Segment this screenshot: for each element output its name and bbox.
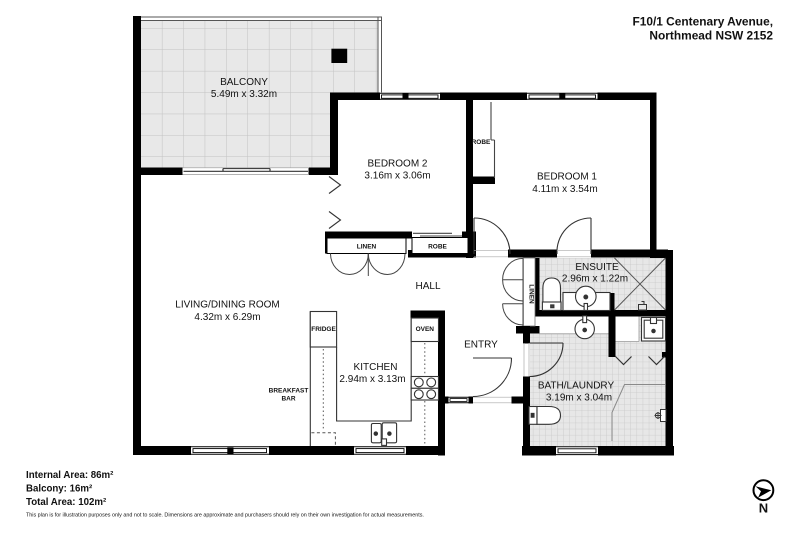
svg-text:BALCONY: BALCONY [220, 77, 268, 88]
svg-text:Internal Area: 86m²: Internal Area: 86m² [26, 470, 114, 481]
svg-text:Balcony: 16m²: Balcony: 16m² [26, 484, 93, 495]
svg-text:LIVING/DINING ROOM: LIVING/DINING ROOM [175, 300, 279, 311]
svg-text:BAR: BAR [281, 396, 295, 403]
svg-text:ROBE: ROBE [428, 244, 447, 251]
svg-text:This plan is for illustration: This plan is for illustration purposes o… [26, 513, 424, 519]
svg-text:FRIDGE: FRIDGE [311, 326, 336, 333]
svg-text:LINEN: LINEN [528, 284, 535, 304]
svg-text:Northmead NSW 2152: Northmead NSW 2152 [649, 29, 773, 43]
svg-text:3.19m x 3.04m: 3.19m x 3.04m [546, 393, 612, 404]
svg-text:N: N [759, 501, 768, 516]
svg-text:3.16m x 3.06m: 3.16m x 3.06m [364, 171, 430, 182]
svg-text:Total Area: 102m²: Total Area: 102m² [26, 497, 107, 508]
svg-text:2.94m x 3.13m: 2.94m x 3.13m [339, 374, 405, 385]
svg-text:LINEN: LINEN [357, 244, 377, 251]
svg-text:BATH/LAUNDRY: BATH/LAUNDRY [538, 381, 615, 392]
svg-text:ENTRY: ENTRY [464, 340, 498, 351]
svg-text:ENSUITE: ENSUITE [575, 262, 619, 273]
svg-text:HALL: HALL [415, 281, 440, 292]
svg-text:2.96m x 1.22m: 2.96m x 1.22m [562, 274, 628, 285]
svg-text:4.11m x 3.54m: 4.11m x 3.54m [532, 184, 597, 195]
svg-text:KITCHEN: KITCHEN [354, 362, 398, 373]
svg-text:5.49m x 3.32m: 5.49m x 3.32m [211, 89, 277, 100]
svg-text:BEDROOM 1: BEDROOM 1 [537, 172, 597, 183]
svg-text:BREAKFAST: BREAKFAST [269, 388, 309, 395]
svg-text:F10/1 Centenary Avenue,: F10/1 Centenary Avenue, [632, 15, 773, 29]
svg-text:OVEN: OVEN [416, 326, 435, 333]
svg-text:ROBE: ROBE [472, 139, 491, 146]
svg-text:4.32m x 6.29m: 4.32m x 6.29m [194, 312, 260, 323]
svg-text:BEDROOM 2: BEDROOM 2 [367, 159, 427, 170]
